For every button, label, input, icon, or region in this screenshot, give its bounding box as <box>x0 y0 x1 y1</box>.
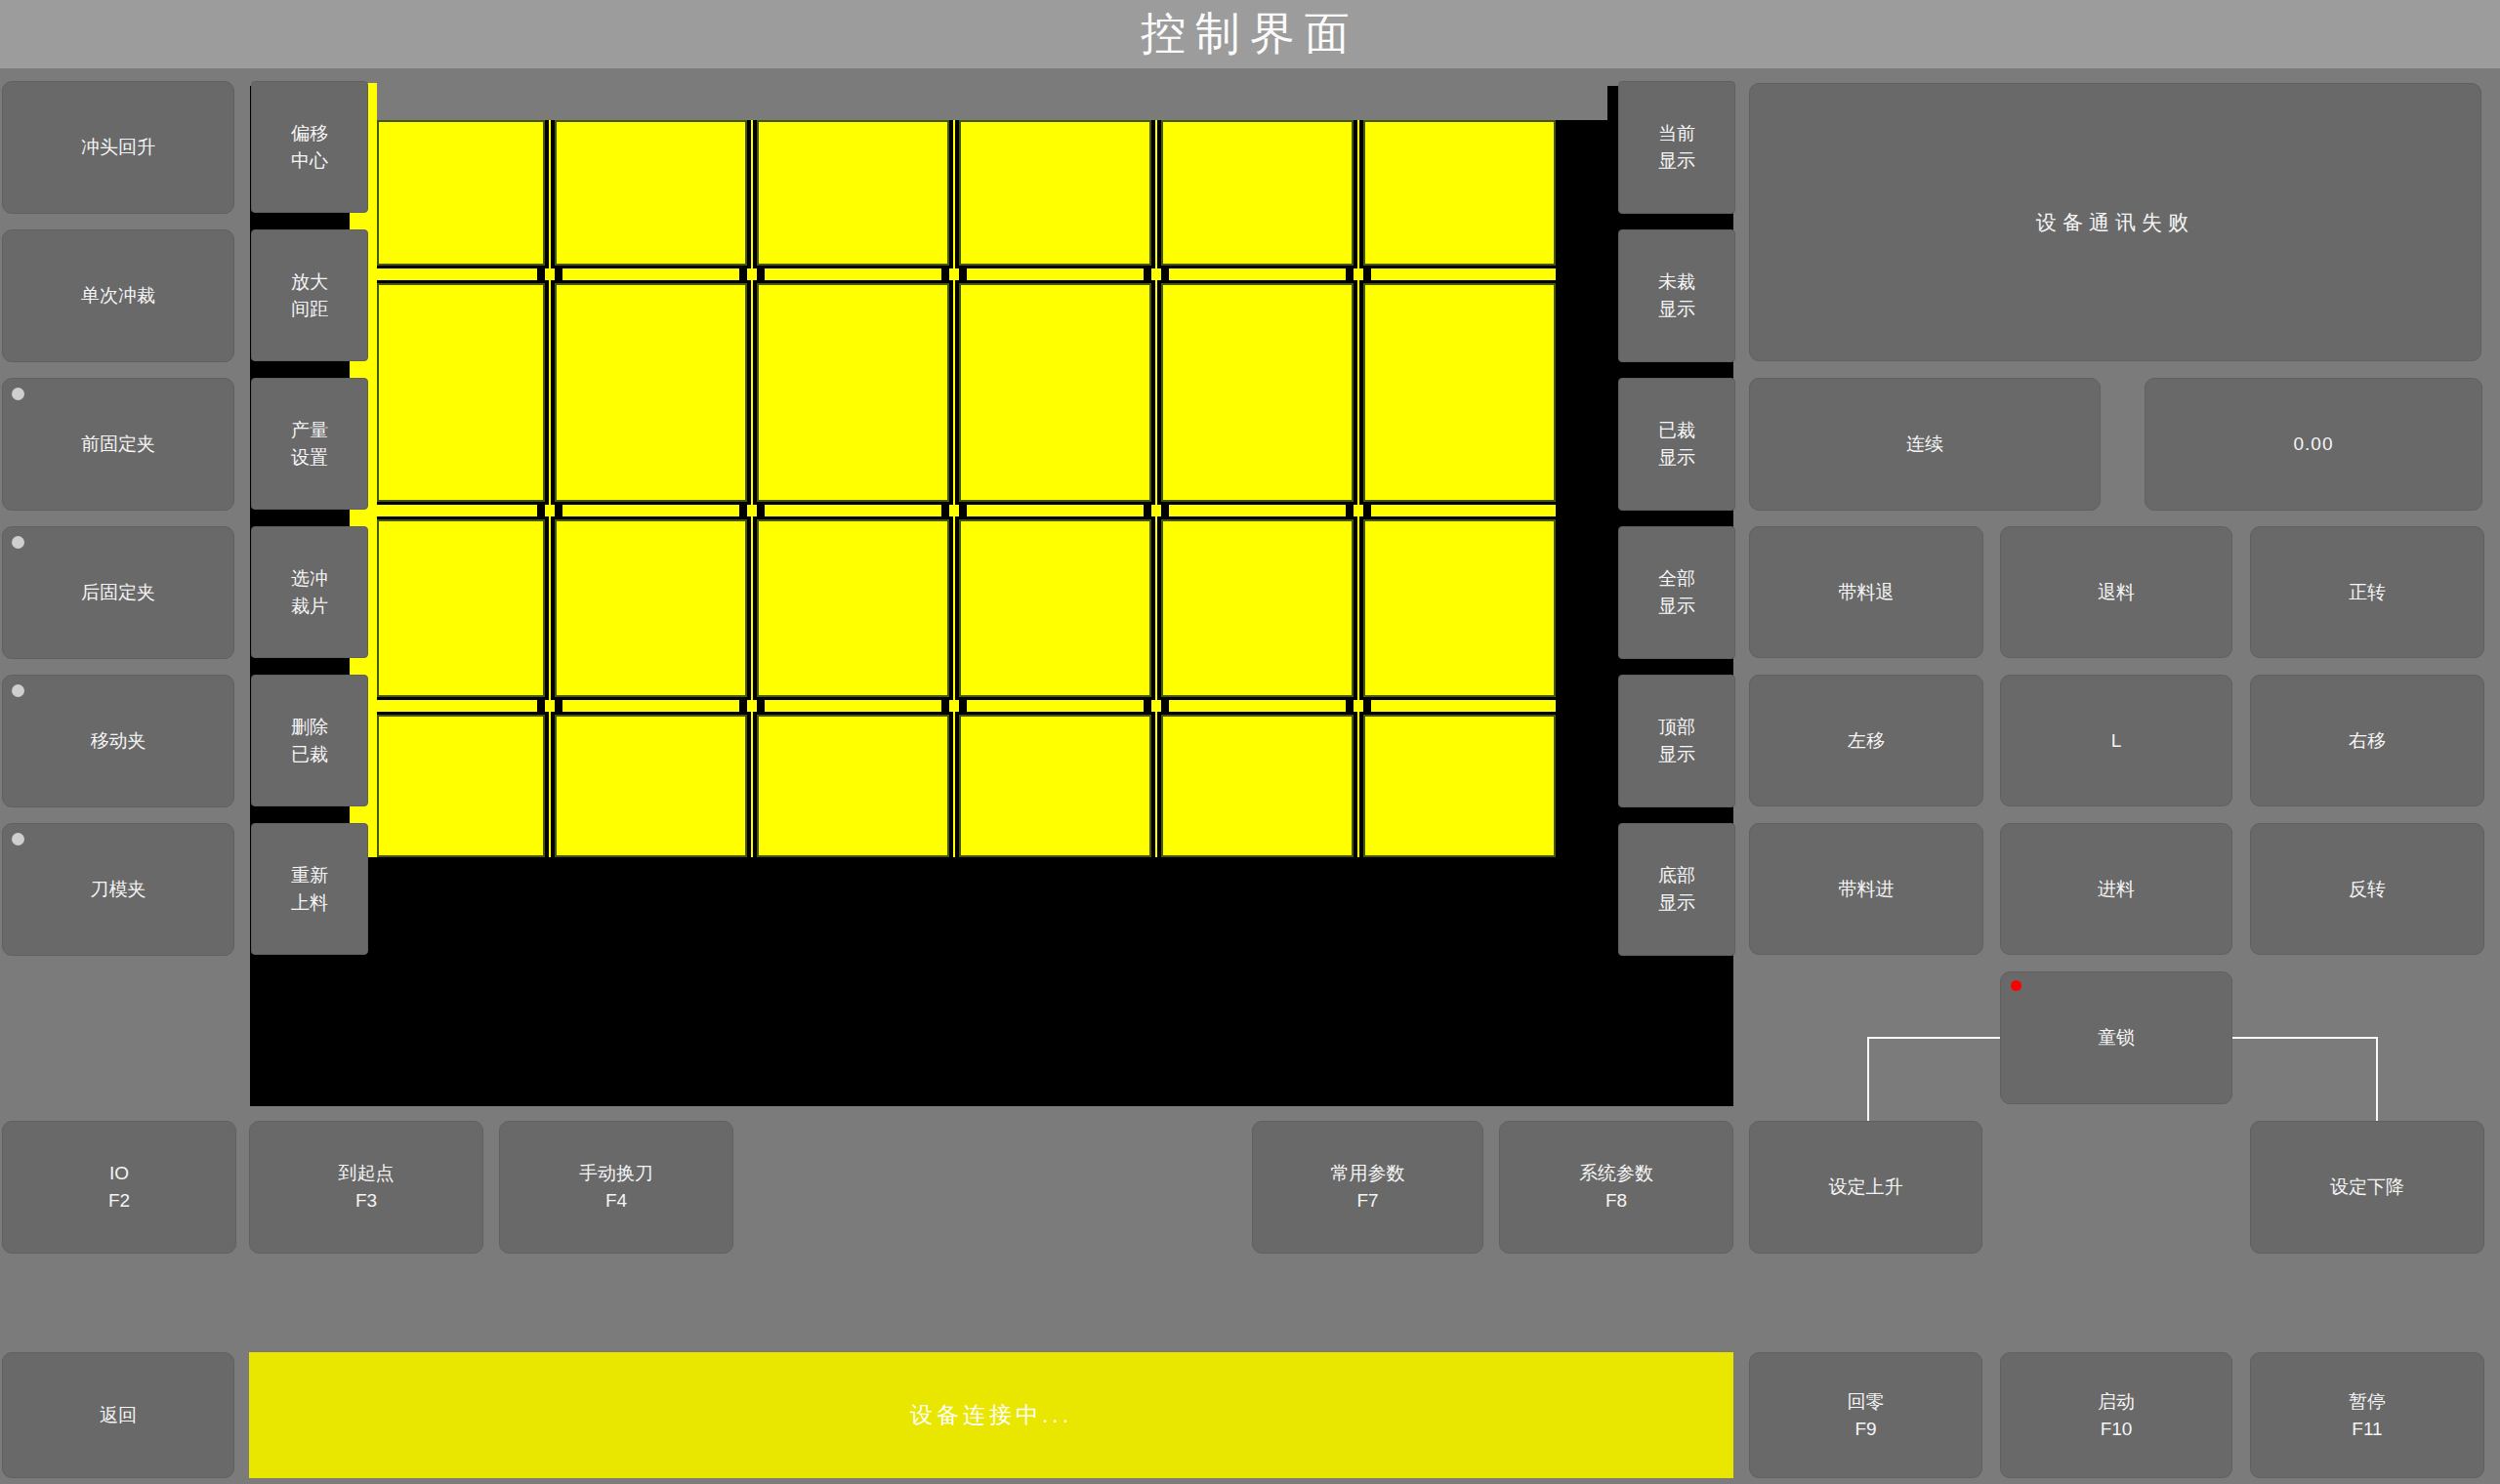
band-notch <box>537 505 545 516</box>
band-notch <box>555 268 562 280</box>
button-show-current[interactable]: 当前 显示 <box>1618 81 1735 214</box>
button-label: 已裁 <box>291 741 328 768</box>
button-pause-f11[interactable]: 暂停 F11 <box>2250 1352 2484 1478</box>
button-label: 连续 <box>1906 431 1943 458</box>
button-label: 裁片 <box>291 593 328 620</box>
button-label: 偏移 <box>291 120 328 147</box>
band-notch <box>739 505 747 516</box>
button-label: 启动 <box>2098 1388 2135 1416</box>
indicator-dot <box>12 833 24 845</box>
fkey-label: F8 <box>1605 1187 1627 1215</box>
band-notch <box>959 505 967 516</box>
band-notch <box>1346 505 1354 516</box>
gap-line <box>953 120 955 857</box>
button-label: 选冲 <box>291 565 328 593</box>
button-strip-feed[interactable]: 带料进 <box>1749 823 1983 955</box>
button-label: 中心 <box>291 147 328 175</box>
button-label: L <box>2111 727 2122 755</box>
button-delete-cut[interactable]: 删除 已裁 <box>251 675 368 806</box>
sheet-piece <box>1363 120 1556 266</box>
band-notch <box>1346 268 1354 280</box>
fkey-label: F2 <box>108 1187 130 1215</box>
button-front-clamp[interactable]: 前固定夹 <box>2 378 234 511</box>
button-label: 未裁 <box>1658 268 1695 296</box>
button-label: 刀模夹 <box>91 876 146 903</box>
sheet-piece <box>959 519 1151 697</box>
band-notch <box>757 700 765 712</box>
button-set-rise[interactable]: 设定上升 <box>1749 1121 1982 1254</box>
band-notch <box>757 268 765 280</box>
fkey-label: F3 <box>355 1187 377 1215</box>
fkey-label: F7 <box>1356 1187 1378 1215</box>
sheet-piece <box>1363 715 1556 857</box>
button-offset-center[interactable]: 偏移 中心 <box>251 81 368 213</box>
button-move-left[interactable]: 左移 <box>1749 675 1983 806</box>
sheet-piece <box>757 120 949 266</box>
band-notch <box>537 700 545 712</box>
button-label: 已裁 <box>1658 417 1695 444</box>
button-label: 显示 <box>1658 444 1695 472</box>
button-unload[interactable]: 退料 <box>2000 526 2232 658</box>
sheet-piece <box>757 519 949 697</box>
page-title: 控制界面 <box>1141 4 1359 64</box>
button-label: 前固定夹 <box>81 431 155 458</box>
button-label: 显示 <box>1658 147 1695 175</box>
gap-line <box>549 120 551 857</box>
button-show-all[interactable]: 全部 显示 <box>1618 526 1735 659</box>
button-label: 反转 <box>2349 876 2386 903</box>
sheet-piece <box>959 120 1151 266</box>
button-rear-clamp[interactable]: 后固定夹 <box>2 526 234 659</box>
button-label: 产量 <box>291 417 328 444</box>
band-notch <box>959 268 967 280</box>
band-notch <box>959 700 967 712</box>
button-continuous-mode[interactable]: 连续 <box>1749 378 2101 511</box>
band-notch <box>1346 700 1354 712</box>
sheet-piece <box>757 715 949 857</box>
button-start-f10[interactable]: 启动 F10 <box>2000 1352 2232 1478</box>
button-label: 冲头回升 <box>81 134 155 161</box>
band-notch <box>739 700 747 712</box>
status-message: 设备通讯失败 <box>2036 209 2194 236</box>
button-label: 显示 <box>1658 296 1695 323</box>
value-display: 0.00 <box>2145 378 2482 511</box>
status-panel: 设备通讯失败 <box>1749 83 2481 361</box>
button-moving-clamp[interactable]: 移动夹 <box>2 675 234 807</box>
button-common-params-f7[interactable]: 常用参数 F7 <box>1252 1121 1483 1254</box>
button-label: 全部 <box>1658 565 1695 593</box>
band-notch <box>941 700 949 712</box>
gap-line <box>1155 120 1157 857</box>
button-single-punch[interactable]: 单次冲裁 <box>2 229 234 362</box>
button-child-lock[interactable]: 童锁 <box>2000 971 2232 1104</box>
band-notch <box>1363 505 1371 516</box>
button-reload-material[interactable]: 重新 上料 <box>251 823 368 955</box>
button-enlarge-spacing[interactable]: 放大 间距 <box>251 229 368 361</box>
fkey-label: F4 <box>605 1187 627 1215</box>
button-label: 设置 <box>291 444 328 472</box>
button-back[interactable]: 返回 <box>2 1352 234 1478</box>
button-label: 当前 <box>1658 120 1695 147</box>
button-die-clamp[interactable]: 刀模夹 <box>2 823 234 956</box>
connector-line <box>2376 1037 2378 1121</box>
button-label: 进料 <box>2098 876 2135 903</box>
fkey-label: F9 <box>1854 1416 1876 1443</box>
band-notch <box>555 505 562 516</box>
sheet-piece <box>377 519 545 697</box>
button-label: 回零 <box>1848 1388 1885 1416</box>
button-to-origin-f3[interactable]: 到起点 F3 <box>249 1121 483 1254</box>
sheet-piece <box>377 715 545 857</box>
button-label: 正转 <box>2349 579 2386 606</box>
button-label: 童锁 <box>2098 1024 2135 1051</box>
sheet-piece <box>555 519 747 697</box>
band-notch <box>739 268 747 280</box>
band-notch <box>1144 700 1151 712</box>
sheet-piece <box>555 283 747 502</box>
sheet-grid[interactable] <box>377 120 1556 857</box>
sheet-piece <box>555 715 747 857</box>
button-strip-back[interactable]: 带料退 <box>1749 526 1983 658</box>
alert-dot <box>2011 980 2021 991</box>
button-label: 顶部 <box>1658 714 1695 741</box>
button-forward-rotate[interactable]: 正转 <box>2250 526 2484 658</box>
band-notch <box>1161 700 1169 712</box>
connector-line <box>1867 1037 1869 1121</box>
band-notch <box>1363 268 1371 280</box>
button-show-uncut[interactable]: 未裁 显示 <box>1618 229 1735 362</box>
button-show-bottom[interactable]: 底部 显示 <box>1618 823 1735 956</box>
button-label: 带料进 <box>1839 876 1895 903</box>
band-notch <box>1144 268 1151 280</box>
button-show-cut[interactable]: 已裁 显示 <box>1618 378 1735 511</box>
button-label: 返回 <box>100 1402 137 1429</box>
sheet-piece <box>1161 283 1354 502</box>
sheet-piece <box>555 120 747 266</box>
button-label: 设定下降 <box>2330 1174 2404 1201</box>
button-move-right[interactable]: 右移 <box>2250 675 2484 806</box>
button-set-lower[interactable]: 设定下降 <box>2250 1121 2484 1254</box>
button-label: 系统参数 <box>1579 1160 1653 1187</box>
button-reverse-rotate[interactable]: 反转 <box>2250 823 2484 955</box>
button-label: 底部 <box>1658 862 1695 889</box>
button-show-top[interactable]: 顶部 显示 <box>1618 675 1735 807</box>
band-notch <box>1144 505 1151 516</box>
band-notch <box>1161 268 1169 280</box>
button-label: 右移 <box>2349 727 2386 755</box>
band-notch <box>1161 505 1169 516</box>
canvas-top-band <box>377 86 1607 120</box>
sheet-piece <box>959 715 1151 857</box>
button-label: 退料 <box>2098 579 2135 606</box>
sheet-piece <box>377 120 545 266</box>
band-notch <box>941 268 949 280</box>
connector-line <box>1867 1037 2002 1039</box>
button-label: 显示 <box>1658 593 1695 620</box>
button-label: 常用参数 <box>1331 1160 1405 1187</box>
value-text: 0.00 <box>2294 431 2334 458</box>
band-notch <box>1363 700 1371 712</box>
indicator-dot <box>12 388 24 400</box>
sheet-piece <box>1161 120 1354 266</box>
button-label: 手动换刀 <box>579 1160 653 1187</box>
button-label: IO <box>109 1160 129 1187</box>
button-label: 左移 <box>1848 727 1885 755</box>
sheet-piece <box>1161 519 1354 697</box>
sheet-piece <box>959 283 1151 502</box>
button-label: 间距 <box>291 296 328 323</box>
connection-status-text: 设备连接中... <box>910 1400 1072 1430</box>
sheet-piece <box>1363 519 1556 697</box>
band-notch <box>941 505 949 516</box>
button-label: 暂停 <box>2349 1388 2386 1416</box>
button-io-f2[interactable]: IO F2 <box>2 1121 236 1254</box>
button-label: 带料退 <box>1839 579 1895 606</box>
button-label: 重新 <box>291 862 328 889</box>
button-label: 设定上升 <box>1829 1174 1903 1201</box>
button-label: 上料 <box>291 889 328 917</box>
button-label: 到起点 <box>339 1160 395 1187</box>
connection-status-bar: 设备连接中... <box>249 1352 1733 1478</box>
sheet-piece <box>1161 715 1354 857</box>
connector-line <box>2232 1037 2376 1039</box>
indicator-dot <box>12 684 24 697</box>
button-punch-raise[interactable]: 冲头回升 <box>2 81 234 214</box>
button-home-f9[interactable]: 回零 F9 <box>1749 1352 1982 1478</box>
button-system-params-f8[interactable]: 系统参数 F8 <box>1499 1121 1733 1254</box>
band-notch <box>757 505 765 516</box>
button-select-pieces[interactable]: 选冲 裁片 <box>251 526 368 658</box>
button-manual-tool-change-f4[interactable]: 手动换刀 F4 <box>499 1121 733 1254</box>
button-feed[interactable]: 进料 <box>2000 823 2232 955</box>
indicator-dot <box>12 536 24 549</box>
sheet-piece <box>1363 283 1556 502</box>
button-label: 显示 <box>1658 741 1695 768</box>
button-label: 单次冲裁 <box>81 282 155 309</box>
button-l[interactable]: L <box>2000 675 2232 806</box>
gap-line <box>751 120 753 857</box>
button-label: 后固定夹 <box>81 579 155 606</box>
band-notch <box>537 268 545 280</box>
sheet-piece <box>757 283 949 502</box>
button-label: 移动夹 <box>91 727 146 755</box>
gap-line <box>1357 120 1359 857</box>
fkey-label: F10 <box>2101 1416 2133 1443</box>
button-label: 放大 <box>291 268 328 296</box>
title-bar: 控制界面 <box>0 0 2500 68</box>
button-label: 删除 <box>291 714 328 741</box>
button-yield-settings[interactable]: 产量 设置 <box>251 378 368 510</box>
button-label: 显示 <box>1658 889 1695 917</box>
sheet-piece <box>377 283 545 502</box>
fkey-label: F11 <box>2352 1416 2382 1443</box>
band-notch <box>555 700 562 712</box>
